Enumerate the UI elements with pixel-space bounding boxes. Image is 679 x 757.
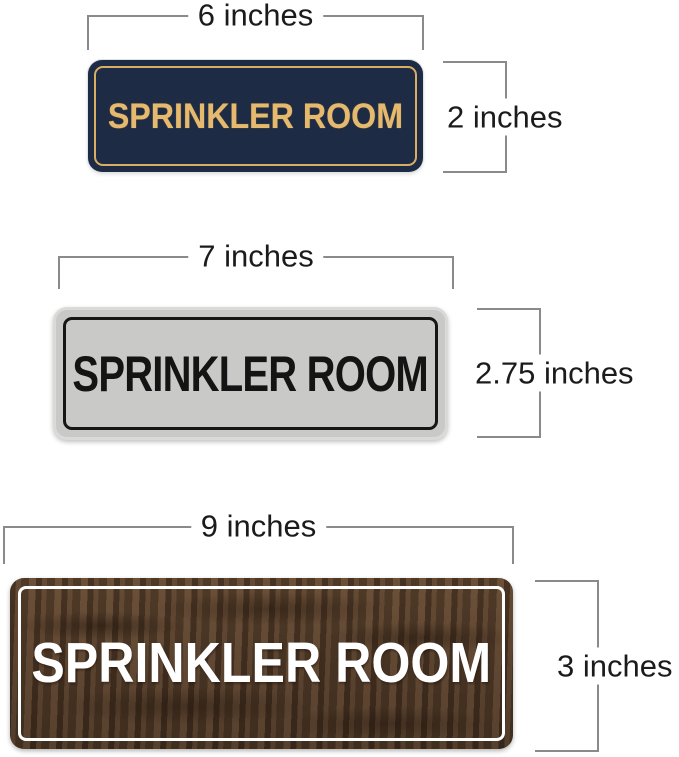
- height-dimension-bracket-navy: 2 inches: [443, 61, 507, 173]
- sign-navy: SPRINKLER ROOM: [88, 60, 423, 172]
- sign-silver: SPRINKLER ROOM: [53, 307, 448, 440]
- height-dimension-label-silver: 2.75 inches: [465, 355, 644, 392]
- height-dimension-bracket-wood: 3 inches: [535, 580, 599, 752]
- sign-wood: SPRINKLER ROOM: [10, 578, 513, 749]
- sign-silver-text: SPRINKLER ROOM: [73, 349, 428, 399]
- width-dimension-label-wood: 9 inches: [191, 508, 326, 545]
- sign-wood-text: SPRINKLER ROOM: [32, 635, 492, 692]
- width-dimension-bracket-silver: 7 inches: [58, 256, 454, 289]
- height-dimension-label-wood: 3 inches: [547, 648, 679, 685]
- width-dimension-bracket-wood: 9 inches: [3, 526, 514, 564]
- height-dimension-bracket-silver: 2.75 inches: [477, 308, 541, 438]
- product-dimension-diagram: 6 inches SPRINKLER ROOM 2 inches 7 inche…: [0, 0, 679, 757]
- width-dimension-label-silver: 7 inches: [188, 238, 323, 275]
- height-dimension-label-navy: 2 inches: [437, 99, 572, 136]
- width-dimension-label-navy: 6 inches: [188, 0, 323, 34]
- width-dimension-bracket-navy: 6 inches: [87, 15, 424, 50]
- sign-navy-text: SPRINKLER ROOM: [108, 99, 403, 134]
